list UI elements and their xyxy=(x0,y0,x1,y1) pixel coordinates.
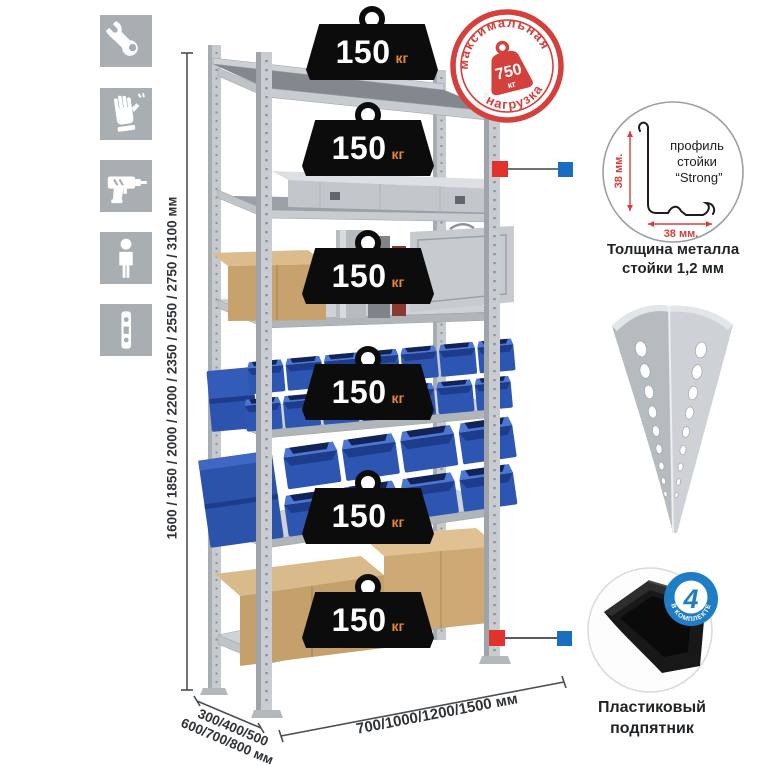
badge-value: 150 xyxy=(332,602,387,639)
load-badge: 150кг xyxy=(302,574,434,648)
badge-unit: кг xyxy=(396,50,409,66)
profile-label-2: стойки xyxy=(677,154,717,169)
wrench-icon xyxy=(100,15,152,67)
profile-dim-horizontal: 38 мм. xyxy=(664,228,699,240)
red-marker-bottom xyxy=(489,630,505,646)
profile-dim-vertical: 38 мм. xyxy=(613,154,625,189)
foot-caption-line2: подпятник xyxy=(610,720,694,738)
load-badge: 150кг xyxy=(306,6,438,80)
foot-callout-marker xyxy=(489,630,572,646)
qty-badge: 4 в комплекте xyxy=(664,572,718,626)
profile-detail: 38 мм. 38 мм. профиль стойки “Strong” xyxy=(603,102,743,242)
gloves-icon xyxy=(100,88,152,140)
profile-label-1: профиль xyxy=(670,138,724,153)
red-marker-top xyxy=(492,161,508,177)
shelving-infographic: максимальная нагрузка 750 кг 38 мм. xyxy=(0,0,765,765)
profile-caption-line2: стойки 1,2 мм xyxy=(622,260,724,277)
load-badge: 150кг xyxy=(302,346,434,420)
profile-label-3: “Strong” xyxy=(676,170,723,185)
profile-callout-marker xyxy=(492,161,573,177)
badge-unit: кг xyxy=(392,274,405,290)
person-icon xyxy=(100,232,152,284)
drill-icon xyxy=(100,160,152,212)
badge-value: 150 xyxy=(336,34,391,71)
badge-unit: кг xyxy=(392,618,405,634)
angle-post-image xyxy=(612,305,733,533)
blue-marker-bottom xyxy=(557,631,572,646)
aluminium-case xyxy=(272,171,500,213)
height-dimension-line xyxy=(181,53,193,690)
badge-value: 150 xyxy=(332,130,387,167)
badge-value: 150 xyxy=(332,374,387,411)
load-badge: 150кг xyxy=(302,230,434,304)
profile-caption-line1: Толщина металла xyxy=(607,241,739,258)
blue-marker-top xyxy=(558,162,573,177)
badge-unit: кг xyxy=(392,514,405,530)
load-badge: 150кг xyxy=(302,102,434,176)
badge-value: 150 xyxy=(332,258,387,295)
badge-unit: кг xyxy=(392,390,405,406)
badge-value: 150 xyxy=(332,498,387,535)
qty-badge-number: 4 xyxy=(682,584,698,614)
height-dimension-label: 1600 / 1850 / 2000 / 2200 / 2350 / 2550 … xyxy=(165,197,180,540)
plastic-foot-detail: 4 в комплекте xyxy=(588,568,718,692)
upright-strip-icon xyxy=(100,304,152,356)
badge-unit: кг xyxy=(392,146,405,162)
foot-caption-line1: Пластиковый xyxy=(598,699,706,717)
load-badge: 150кг xyxy=(302,470,434,544)
